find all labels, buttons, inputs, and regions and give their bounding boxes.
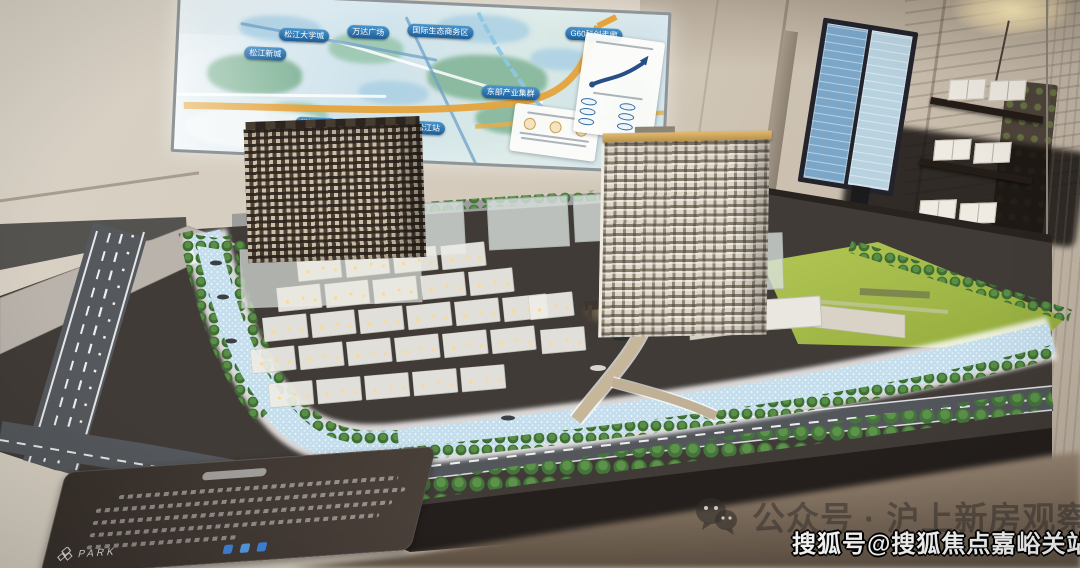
showroom-scene: 松江新城 松江大学城 万达广场 国际生态商务区 东部产业集群 G60科创走廊 松…: [0, 0, 1080, 568]
photo-vignette: [0, 0, 1080, 568]
